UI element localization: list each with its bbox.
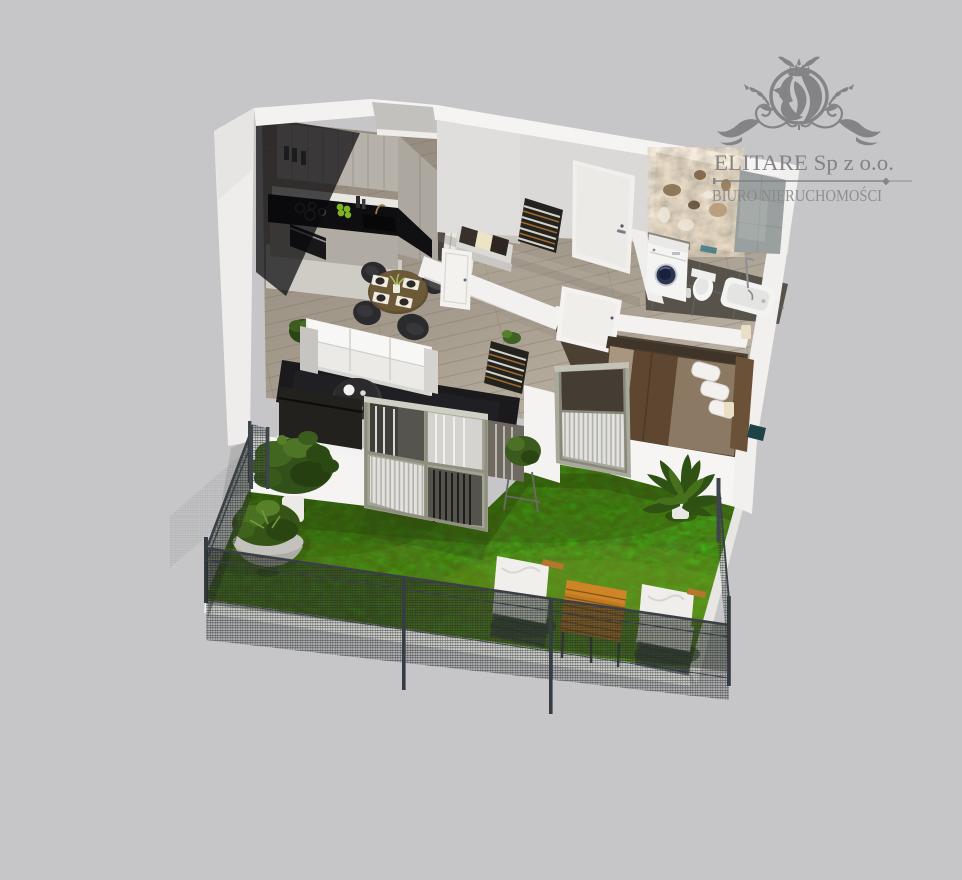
svg-text:BIURO NIERUCHOMOŚCI: BIURO NIERUCHOMOŚCI (712, 186, 882, 205)
svg-text:ELITARE Sp z o.o.: ELITARE Sp z o.o. (714, 150, 894, 175)
